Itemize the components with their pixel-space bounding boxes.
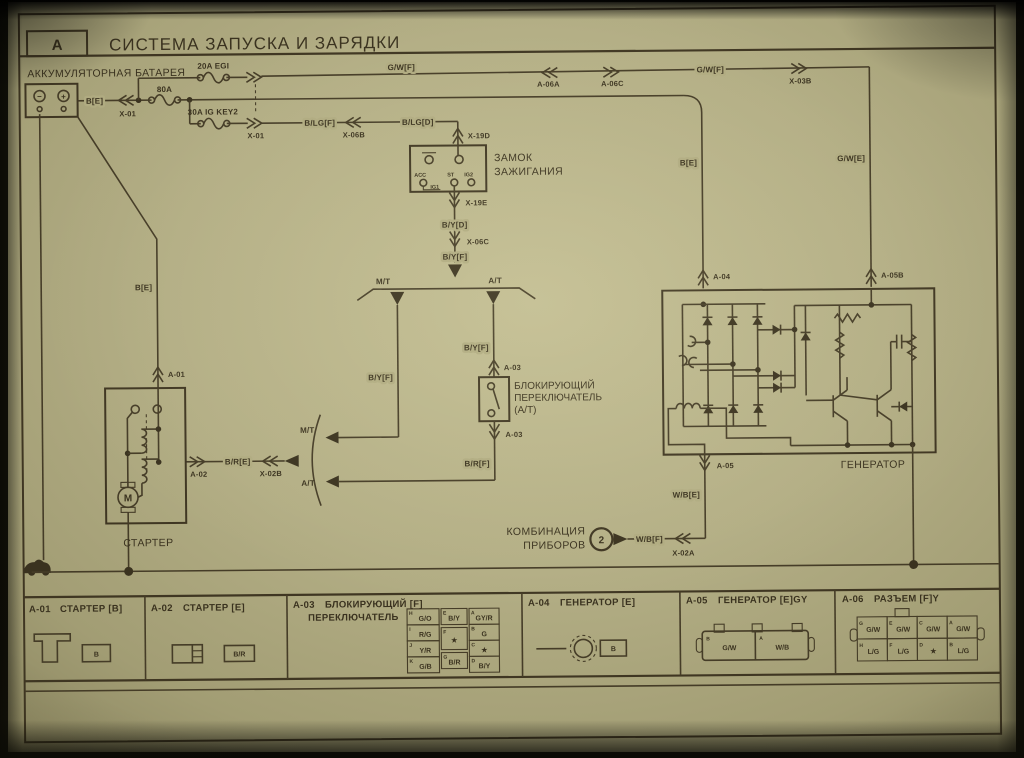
pin-wire: L/G xyxy=(898,649,910,656)
connector-x01-bottom: X-01 xyxy=(248,131,265,140)
starter-label: СТАРТЕР xyxy=(123,537,173,549)
wire-label-be-gen: B[E] xyxy=(680,158,697,167)
cell-a01-id: A-01 xyxy=(29,604,51,615)
pin-wire: G/W xyxy=(896,627,910,634)
cell-a01-pin: B xyxy=(94,652,99,659)
ignition-acc: ACC xyxy=(414,173,426,179)
page-title: СИСТЕМА ЗАПУСКА И ЗАРЯДКИ xyxy=(109,33,400,55)
connector-a05b: A-05B xyxy=(881,271,904,280)
pin-wire: B/Y xyxy=(479,663,491,670)
wire-label-bre: B/R[E] xyxy=(225,457,251,466)
pin-wire: L/G xyxy=(868,649,880,656)
connector-a03-out: A-03 xyxy=(505,430,522,439)
connector-x01-top: X-01 xyxy=(119,109,136,118)
cell-a03-title2: ПЕРЕКЛЮЧАТЕЛЬ xyxy=(308,612,399,624)
index-letter: A xyxy=(52,37,63,54)
connector-x03b: X-03B xyxy=(789,76,812,85)
connector-a06c: A-06C xyxy=(601,79,624,88)
ignition-label-1: ЗАМОК xyxy=(494,152,533,164)
pin-wire: Y/R xyxy=(420,648,432,655)
cluster-label-2: ПРИБОРОВ xyxy=(523,539,585,552)
connector-x19d: X-19D xyxy=(468,131,491,140)
wire-label-byf: B/Y[F] xyxy=(443,252,468,261)
wire-label-gwf-right: G/W[F] xyxy=(697,65,725,74)
battery-pos-icon: + xyxy=(61,92,66,101)
pin-letter: K xyxy=(409,659,413,665)
cell-a04-pin: B xyxy=(611,646,616,653)
ignition-ig2: IG2 xyxy=(464,172,473,178)
fuse-20a-label: 20A EGI xyxy=(197,61,229,70)
fork-label-mt: M/T xyxy=(376,277,390,286)
pin-letter: C xyxy=(919,620,923,626)
fuse-80a-label: 80A xyxy=(157,85,172,94)
pin-letter: D xyxy=(471,658,475,664)
connector-a01: A-01 xyxy=(168,370,185,379)
ignition-label-2: ЗАЖИГАНИЯ xyxy=(494,166,563,179)
wiring-diagram-svg: A СИСТЕМА ЗАПУСКА И ЗАРЯДКИ АККУМУЛЯТОРН… xyxy=(0,0,1024,758)
generator-label: ГЕНЕРАТОР xyxy=(841,459,906,472)
connector-x06b: X-06B xyxy=(343,130,366,139)
connector-a06a: A-06A xyxy=(537,80,560,89)
pin-letter: A xyxy=(471,610,475,616)
pin-wire: GY/R xyxy=(475,615,492,622)
wire-label-byf-mt: B/Y[F] xyxy=(368,373,393,382)
cell-a05-title: ГЕНЕРАТОР [E]GY xyxy=(718,594,808,606)
ignition-st: ST xyxy=(447,172,455,178)
pin-wire: W/B xyxy=(776,645,790,652)
pin-wire: G/W xyxy=(722,645,736,652)
connector-x06c: X-06C xyxy=(467,237,490,246)
pin-wire: G/B xyxy=(419,664,432,671)
wire-label-wbf: W/B[F] xyxy=(636,535,663,544)
cell-a05-id: A-05 xyxy=(686,595,708,606)
pin-letter: F xyxy=(889,643,892,649)
fork-label-at: A/T xyxy=(488,276,502,285)
wire-label-blgd: B/LG[D] xyxy=(402,118,434,127)
connector-x02b: X-02B xyxy=(260,469,283,478)
pin-letter: C xyxy=(471,642,475,648)
cell-a02-title: СТАРТЕР [E] xyxy=(183,602,245,614)
cell-a02-pin: B/R xyxy=(233,651,245,658)
pin-wire: G/W xyxy=(866,627,880,634)
connector-a02: A-02 xyxy=(190,470,207,479)
scanned-wiring-page: A СИСТЕМА ЗАПУСКА И ЗАРЯДКИ АККУМУЛЯТОРН… xyxy=(0,0,1024,758)
connector-a05: A-05 xyxy=(717,461,734,470)
pin-letter: B xyxy=(471,626,475,632)
pin-letter: G xyxy=(859,621,863,627)
cell-a02-id: A-02 xyxy=(151,603,173,614)
pin-wire: G xyxy=(481,631,487,638)
ignition-ig1: IG1 xyxy=(430,185,439,191)
pin-letter: B xyxy=(706,636,710,642)
pin-wire: ★ xyxy=(451,636,458,644)
cell-a06-id: A-06 xyxy=(842,594,864,605)
inhibitor-label-3: (A/T) xyxy=(514,405,536,416)
pin-letter: H xyxy=(409,611,413,617)
wire-label-blgf: B/LG[F] xyxy=(304,119,335,128)
pin-letter: B xyxy=(949,642,953,648)
cell-a04-title: ГЕНЕРАТОР [E] xyxy=(560,597,635,609)
wire-label-gwe: G/W[E] xyxy=(837,154,865,163)
cluster-label-1: КОМБИНАЦИЯ xyxy=(506,525,585,538)
pin-wire: G/O xyxy=(419,616,432,623)
wire-label-byd: B/Y[D] xyxy=(442,220,468,229)
battery-neg-icon: − xyxy=(37,92,42,101)
join-label-at: A/T xyxy=(301,479,315,488)
wire-label-byf-at: B/Y[F] xyxy=(464,343,489,352)
connector-x02a: X-02A xyxy=(672,548,695,557)
connector-a03-in: A-03 xyxy=(504,363,521,372)
cluster-ref-number: 2 xyxy=(599,535,605,546)
cell-a03-id: A-03 xyxy=(293,600,315,611)
join-label-mt: M/T xyxy=(300,426,314,435)
starter-motor-m: M xyxy=(124,493,132,504)
pin-letter: F xyxy=(443,630,446,636)
wire-label-be-starter: B[E] xyxy=(135,283,152,292)
pin-wire: ★ xyxy=(481,646,488,654)
pin-letter: A xyxy=(759,636,763,642)
pin-wire: B/R xyxy=(448,659,460,666)
pin-letter: G xyxy=(443,655,447,661)
pin-wire: ★ xyxy=(930,647,937,655)
pin-wire: G/W xyxy=(926,626,940,633)
pin-letter: D xyxy=(919,642,923,648)
pin-letter: J xyxy=(409,643,412,649)
cell-a04-id: A-04 xyxy=(528,598,550,609)
cell-a01-title: СТАРТЕР [B] xyxy=(60,603,123,615)
fuse-30a-label: 30A IG KEY2 xyxy=(188,107,239,116)
wire-label-be: B[E] xyxy=(86,97,103,106)
connector-x19e: X-19E xyxy=(465,198,487,207)
cell-a06-title: РАЗЪЕМ [F]Y xyxy=(874,593,940,605)
pin-wire: R/G xyxy=(419,632,432,639)
inhibitor-label-2: ПЕРЕКЛЮЧАТЕЛЬ xyxy=(514,392,602,404)
wire-label-brf: B/R[F] xyxy=(464,459,489,468)
pin-wire: G/W xyxy=(956,626,970,633)
wire-label-gwf-left: G/W[F] xyxy=(388,63,416,72)
pin-wire: B/Y xyxy=(448,615,460,622)
pin-wire: L/G xyxy=(958,648,970,655)
wire-label-wbe: W/B[E] xyxy=(673,490,701,499)
inhibitor-label-1: БЛОКИРУЮЩИЙ xyxy=(514,378,595,392)
pin-letter: A xyxy=(949,620,953,626)
connector-a04: A-04 xyxy=(713,272,731,281)
pin-letter: H xyxy=(859,643,863,649)
